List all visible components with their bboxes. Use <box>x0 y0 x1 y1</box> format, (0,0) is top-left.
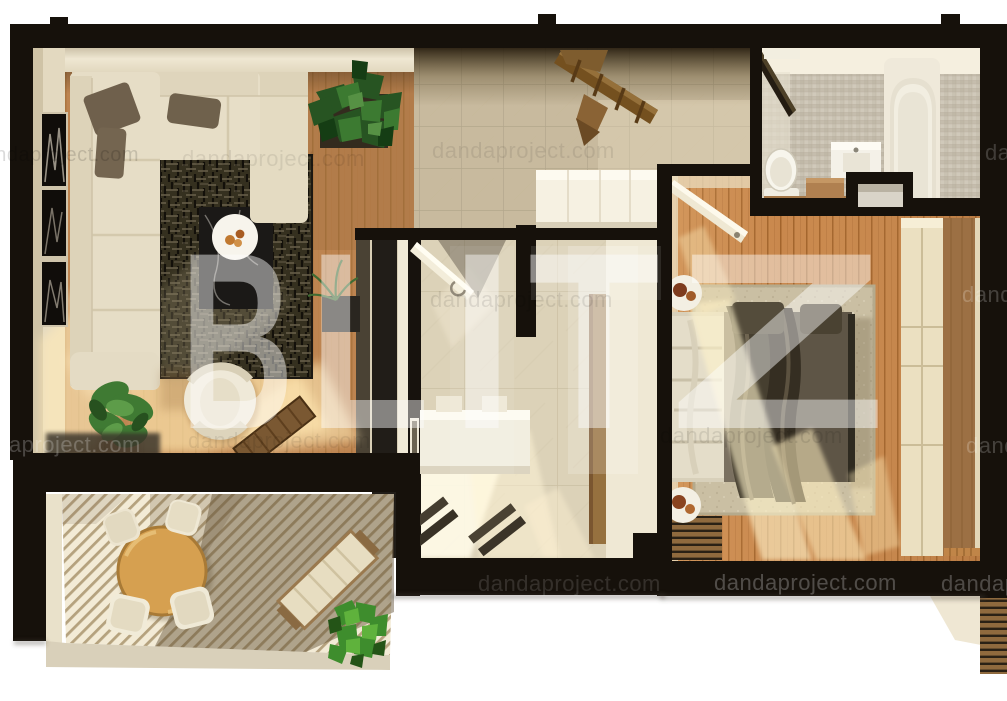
svg-text:dandaproject.com: dandaproject.com <box>714 570 897 595</box>
svg-text:dandaproject.com: dandaproject.com <box>985 140 1007 165</box>
svg-text:dandaproject.com: dandaproject.com <box>962 282 1007 307</box>
svg-text:dandaproject.com: dandaproject.com <box>966 433 1007 458</box>
svg-text:dandaproject.com: dandaproject.com <box>430 287 613 312</box>
svg-text:dandaproject.com: dandaproject.com <box>188 428 371 453</box>
svg-text:dandaproject.com: dandaproject.com <box>478 571 661 596</box>
svg-text:dandaproject.com: dandaproject.com <box>660 423 843 448</box>
svg-text:dandaproject.com: dandaproject.com <box>432 138 615 163</box>
svg-text:dandaproject.com: dandaproject.com <box>0 432 141 457</box>
svg-text:dandaproject.com: dandaproject.com <box>941 571 1007 596</box>
svg-text:dandaproject.com: dandaproject.com <box>182 146 365 171</box>
svg-text:dandaproject.com: dandaproject.com <box>0 144 139 166</box>
